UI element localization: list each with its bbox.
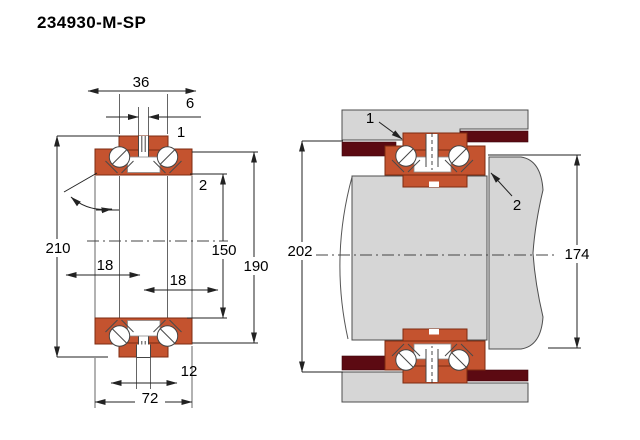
bottom-groove-slot xyxy=(137,345,151,358)
dim-row-offset-right: 18 xyxy=(170,272,187,289)
dim-outer-diameter: 210 xyxy=(45,240,70,257)
left-view-cross-section: 36 6 1 2 210 150 190 18 18 12 72 xyxy=(45,74,268,408)
dim-sleeve-od: 174 xyxy=(564,246,589,263)
ref-label-1: 1 xyxy=(177,124,185,141)
dim-housing-bore: 202 xyxy=(287,243,312,260)
technical-drawing: 36 6 1 2 210 150 190 18 18 12 72 xyxy=(0,0,640,440)
dim-top-width: 36 xyxy=(133,74,150,91)
shaft-break-line xyxy=(340,177,352,339)
shaft xyxy=(352,176,487,340)
ref-label-2: 2 xyxy=(199,177,207,194)
right-view-mounting: 202 174 1 2 xyxy=(287,110,589,402)
raceway-recess xyxy=(128,157,161,173)
dim-row-offset-left: 18 xyxy=(97,257,114,274)
contact-angle-annotation xyxy=(64,173,119,210)
spacer-ring-right xyxy=(460,131,528,142)
dim-bottom-groove: 12 xyxy=(181,363,198,380)
ref-label-1: 1 xyxy=(366,110,374,127)
dim-total-width: 72 xyxy=(142,390,159,407)
dim-bore-diameter: 150 xyxy=(211,242,236,259)
bearing-upper-section xyxy=(95,136,192,175)
ref-label-2: 2 xyxy=(513,197,521,214)
dim-step-diameter: 190 xyxy=(243,258,268,275)
drawing-canvas: 234930-M-SP xyxy=(0,0,640,440)
shaft-sleeve xyxy=(489,157,543,349)
dim-top-groove: 6 xyxy=(186,95,194,112)
